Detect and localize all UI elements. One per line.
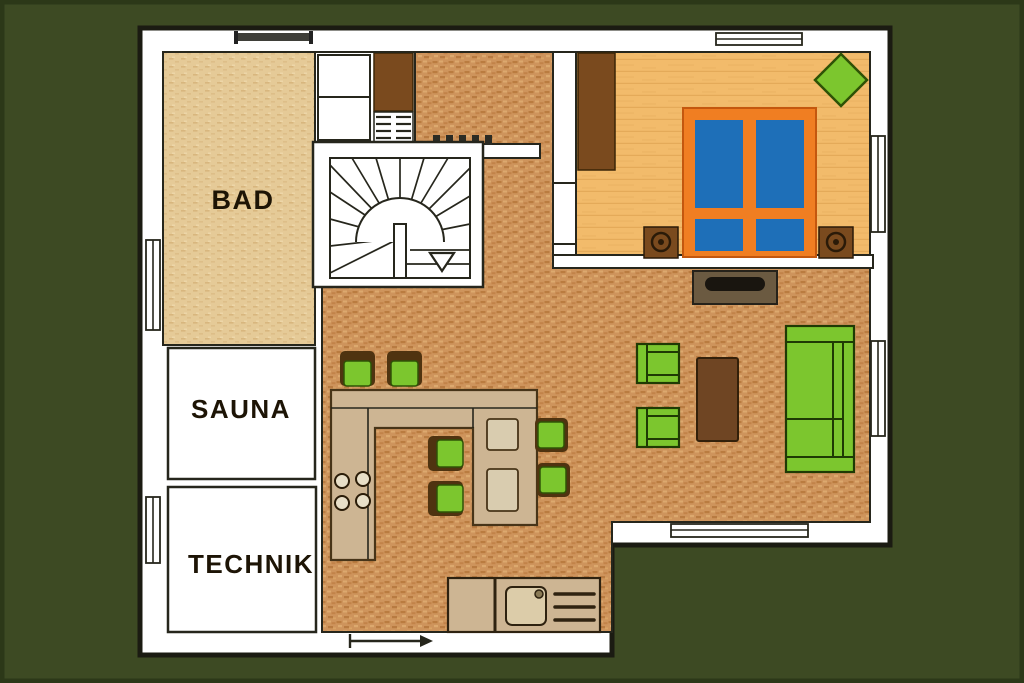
double-bed — [683, 108, 816, 257]
mattress-right — [756, 120, 804, 208]
hall-cabinet-brown — [374, 53, 413, 111]
window-left-lower — [146, 497, 160, 563]
shoe-shelf — [374, 112, 413, 142]
pillow-right — [756, 219, 804, 251]
window-left-upper — [146, 240, 160, 330]
dining-chair — [428, 436, 463, 471]
armchair — [637, 344, 679, 383]
bedroom-left-wall — [553, 52, 576, 183]
window-bottom-living — [671, 524, 808, 537]
nightstand-right — [819, 227, 853, 258]
wardrobe — [578, 53, 615, 170]
bar-stool — [340, 351, 375, 386]
coffee-table — [697, 358, 738, 441]
window-right-bedroom — [871, 136, 885, 232]
sauna-label: SAUNA — [191, 394, 291, 424]
hall-closet — [318, 55, 370, 140]
technik-label: TECHNIK — [188, 549, 314, 579]
mattress-left — [695, 120, 743, 208]
sink-unit — [448, 578, 600, 632]
bad-label: BAD — [212, 185, 275, 215]
bar-stool — [387, 351, 422, 386]
window-right-living — [871, 341, 885, 436]
faucet — [535, 590, 543, 598]
floor-plan-image: BAD SAUNA TECHNIK — [0, 0, 1024, 683]
sofa — [786, 326, 854, 472]
dining-chair — [428, 481, 463, 516]
stair-newel — [394, 224, 406, 278]
dining-chair — [535, 418, 568, 452]
pillow-left — [695, 219, 743, 251]
nightstand-left — [644, 227, 678, 258]
tv-sideboard — [693, 271, 777, 304]
armchair — [637, 408, 679, 447]
floor-plan-svg: BAD SAUNA TECHNIK — [0, 0, 1024, 683]
window-top-bedroom — [716, 33, 802, 45]
dining-chair — [537, 463, 570, 497]
